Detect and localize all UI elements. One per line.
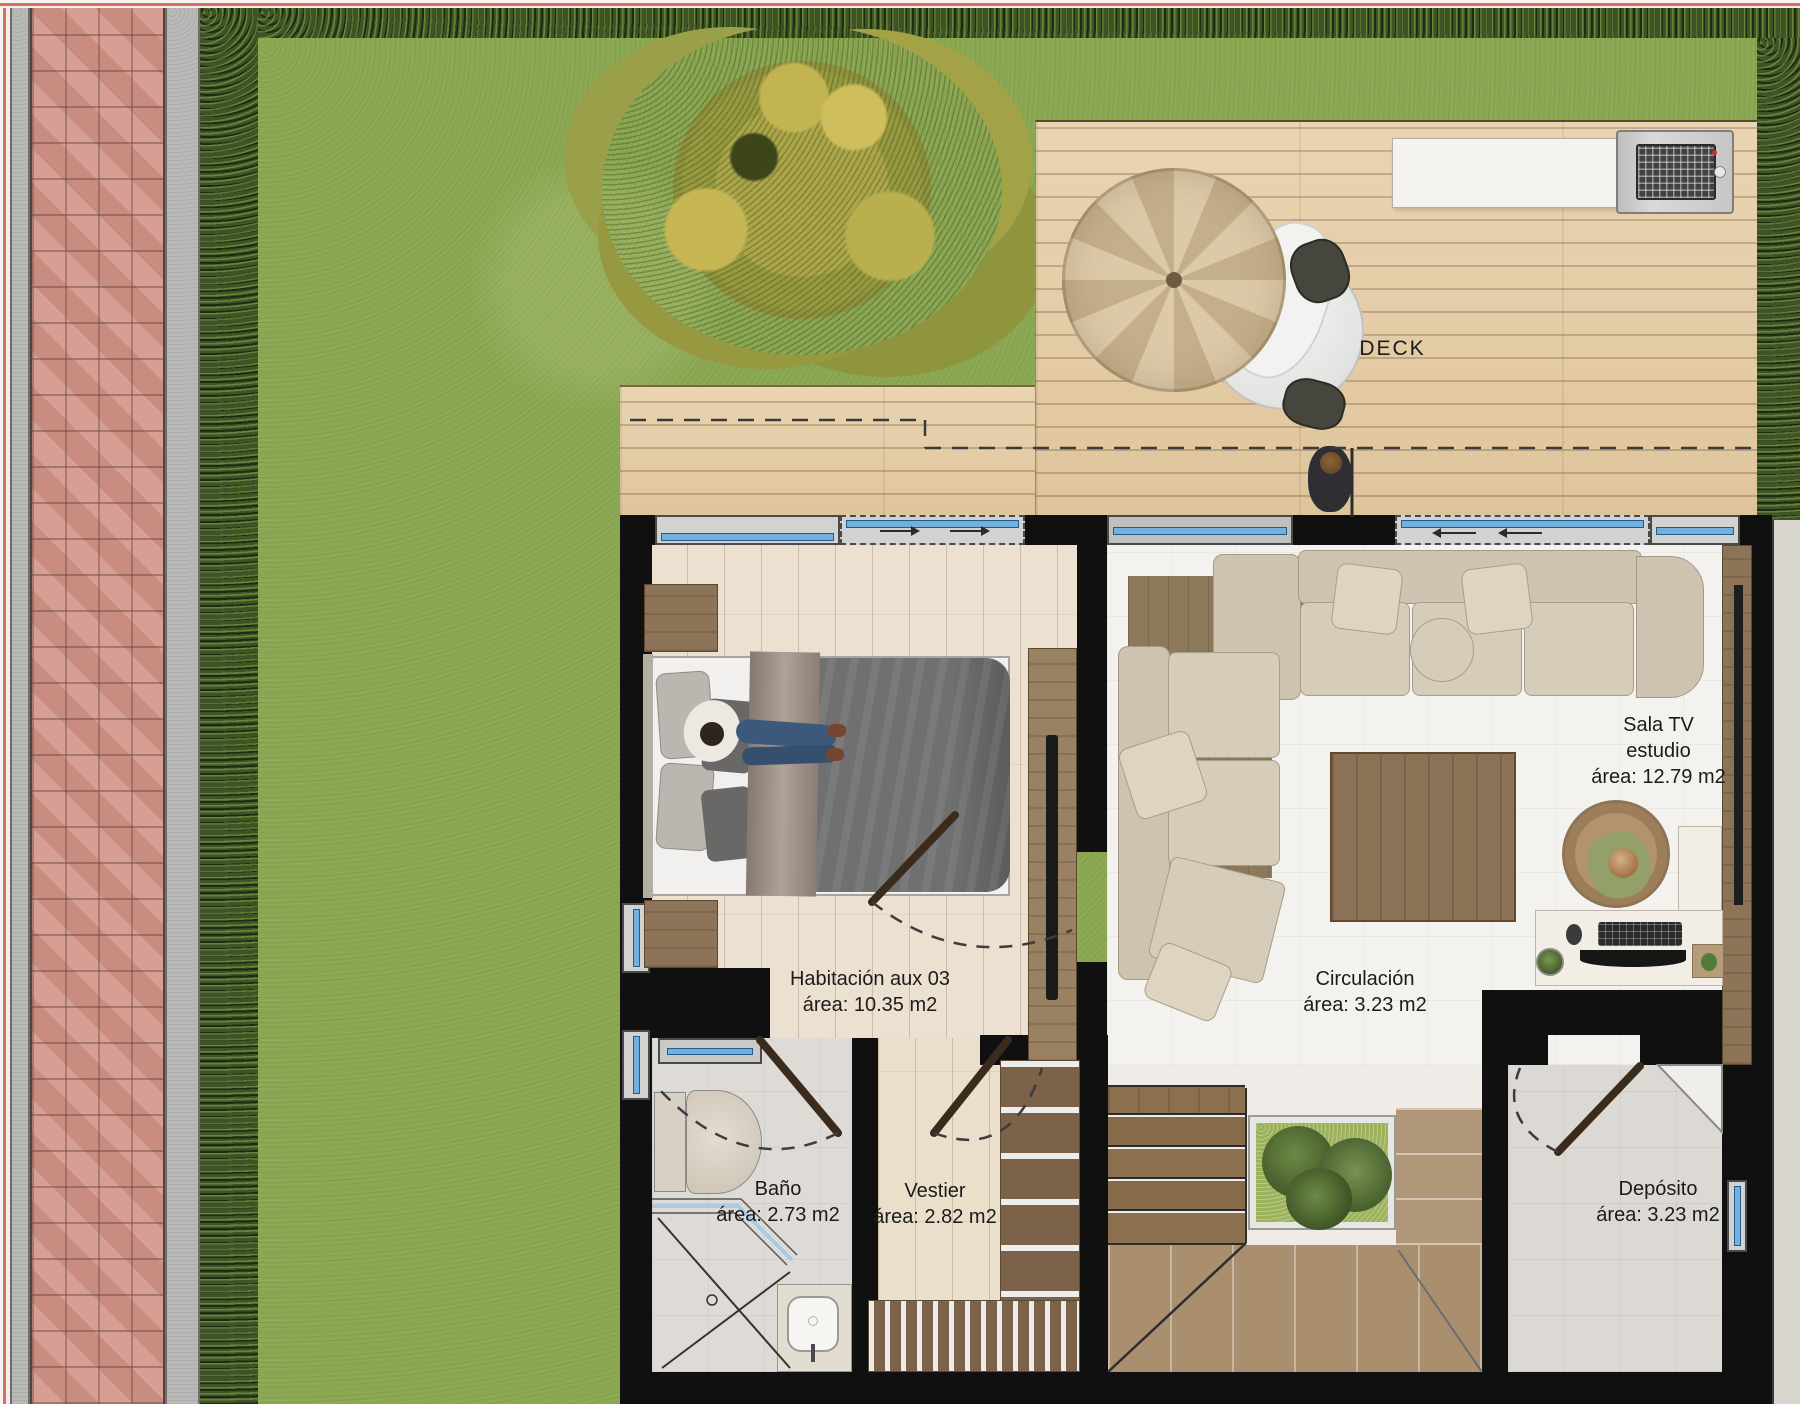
person-at-desk-head bbox=[1608, 848, 1638, 878]
room-label-bedroom: Habitación aux 03 área: 10.35 m2 bbox=[760, 966, 980, 1018]
wall-deposito-top-left bbox=[1508, 1035, 1548, 1065]
person-on-bed-shoe bbox=[826, 748, 844, 761]
stair-upper-flight bbox=[1396, 1108, 1482, 1245]
slide-direction-arrow bbox=[880, 530, 916, 532]
window-glass bbox=[633, 1036, 640, 1094]
window-glass bbox=[1113, 527, 1287, 535]
sofa-arm-right bbox=[1636, 556, 1704, 698]
sliding-door-bedroom bbox=[840, 515, 1025, 545]
bed-headboard bbox=[643, 654, 653, 898]
room-label-circulacion: Circulación área: 3.23 m2 bbox=[1255, 966, 1475, 1018]
room-name: Circulación bbox=[1255, 966, 1475, 992]
site-plan: DECK bbox=[0, 0, 1800, 1404]
person-on-bed-shoe bbox=[828, 724, 846, 737]
sofa-pillow bbox=[1330, 562, 1404, 636]
slide-direction-arrow bbox=[950, 530, 986, 532]
grill-knob bbox=[1714, 166, 1726, 178]
room-area: área: 10.35 m2 bbox=[760, 992, 980, 1018]
window-glass bbox=[667, 1048, 753, 1055]
brick-walkway bbox=[30, 8, 165, 1404]
tree bbox=[602, 25, 1002, 355]
desk-plant bbox=[1536, 948, 1564, 976]
slide-direction-arrow bbox=[1436, 532, 1476, 534]
concrete-curb-inner bbox=[165, 8, 200, 1404]
wardrobe-bottom bbox=[868, 1300, 1080, 1372]
stair-tread bbox=[1108, 1085, 1245, 1115]
room-label-vestier: Vestier área: 2.82 m2 bbox=[825, 1178, 1045, 1230]
sink-drain bbox=[808, 1316, 818, 1326]
room-name: Sala TV bbox=[1556, 712, 1761, 738]
bed-throw-blanket bbox=[746, 651, 820, 896]
room-label-sala-tv: Sala TV estudio área: 12.79 m2 bbox=[1556, 712, 1761, 790]
room-name: Habitación aux 03 bbox=[760, 966, 980, 992]
window-glass bbox=[1656, 527, 1734, 535]
deck-label: DECK bbox=[1320, 336, 1465, 362]
window-glass bbox=[661, 533, 834, 541]
hedge-left bbox=[200, 8, 258, 1404]
stair-tread bbox=[1108, 1149, 1245, 1179]
room-area: área: 3.23 m2 bbox=[1255, 992, 1475, 1018]
window-living-right bbox=[1650, 515, 1740, 545]
outdoor-counter bbox=[1392, 138, 1618, 208]
room-label-deposito: Depósito área: 3.23 m2 bbox=[1548, 1176, 1768, 1228]
desk-return bbox=[1678, 826, 1722, 912]
nightstand bbox=[644, 584, 718, 652]
person-on-bed-head bbox=[700, 722, 724, 746]
sofa-seat-cushion bbox=[1524, 602, 1634, 696]
wall-segment bbox=[1025, 515, 1107, 545]
sofa-round-pillow bbox=[1410, 618, 1474, 682]
side-path-right bbox=[1772, 520, 1800, 1404]
hedge-right bbox=[1757, 38, 1800, 520]
wall-south bbox=[620, 1372, 1757, 1404]
desk-decor-board bbox=[1692, 944, 1724, 978]
room-area: área: 12.79 m2 bbox=[1556, 764, 1761, 790]
wall-vestier-stairs bbox=[1080, 1035, 1108, 1372]
window-bedroom bbox=[655, 515, 840, 545]
room-area: área: 2.82 m2 bbox=[825, 1204, 1045, 1230]
coffee-table bbox=[1330, 752, 1516, 922]
room-subtitle: estudio bbox=[1556, 738, 1761, 764]
slide-direction-arrow bbox=[1502, 532, 1542, 534]
room-area: área: 3.23 m2 bbox=[1548, 1202, 1768, 1228]
stair-tread bbox=[1108, 1181, 1245, 1211]
room-name: Depósito bbox=[1548, 1176, 1768, 1202]
decor-plant bbox=[1701, 953, 1717, 971]
stair-tread bbox=[1108, 1117, 1245, 1147]
wall-bedroom-living bbox=[1077, 545, 1107, 852]
keyboard bbox=[1598, 922, 1682, 946]
sofa-pillow bbox=[1460, 562, 1534, 636]
person-on-deck-head bbox=[1320, 452, 1342, 474]
wall-stairs-deposito bbox=[1482, 990, 1508, 1372]
planter-plant bbox=[1286, 1168, 1352, 1230]
wall-desk-nook bbox=[1508, 990, 1752, 1035]
stair-landing bbox=[1108, 1245, 1482, 1372]
curved-monitor bbox=[1580, 950, 1686, 967]
room-name: Vestier bbox=[825, 1178, 1045, 1204]
deck-label-text: DECK bbox=[1320, 336, 1465, 362]
property-boundary-left bbox=[0, 8, 10, 1404]
grill-indicator-light bbox=[1712, 150, 1717, 155]
property-boundary-top bbox=[0, 0, 1800, 8]
hedge-top bbox=[258, 8, 1800, 38]
nightstand bbox=[644, 900, 718, 968]
mouse bbox=[1566, 924, 1582, 945]
window-bathroom-west bbox=[622, 1030, 650, 1100]
wall-bathroom-top bbox=[620, 968, 770, 1038]
window-living-left bbox=[1107, 515, 1293, 545]
concrete-curb-outer bbox=[10, 8, 30, 1404]
bathroom-transom-window bbox=[658, 1038, 762, 1064]
window-glass bbox=[633, 909, 640, 967]
person-on-bed-legs bbox=[742, 744, 839, 765]
bed-duvet bbox=[806, 658, 1010, 892]
umbrella-center-cap bbox=[1166, 272, 1182, 288]
sink-faucet bbox=[811, 1344, 815, 1362]
grill-grate bbox=[1636, 144, 1716, 200]
wall-segment bbox=[1293, 515, 1395, 545]
stair-tread bbox=[1108, 1213, 1245, 1245]
tv-screen-bedroom bbox=[1046, 735, 1058, 1000]
